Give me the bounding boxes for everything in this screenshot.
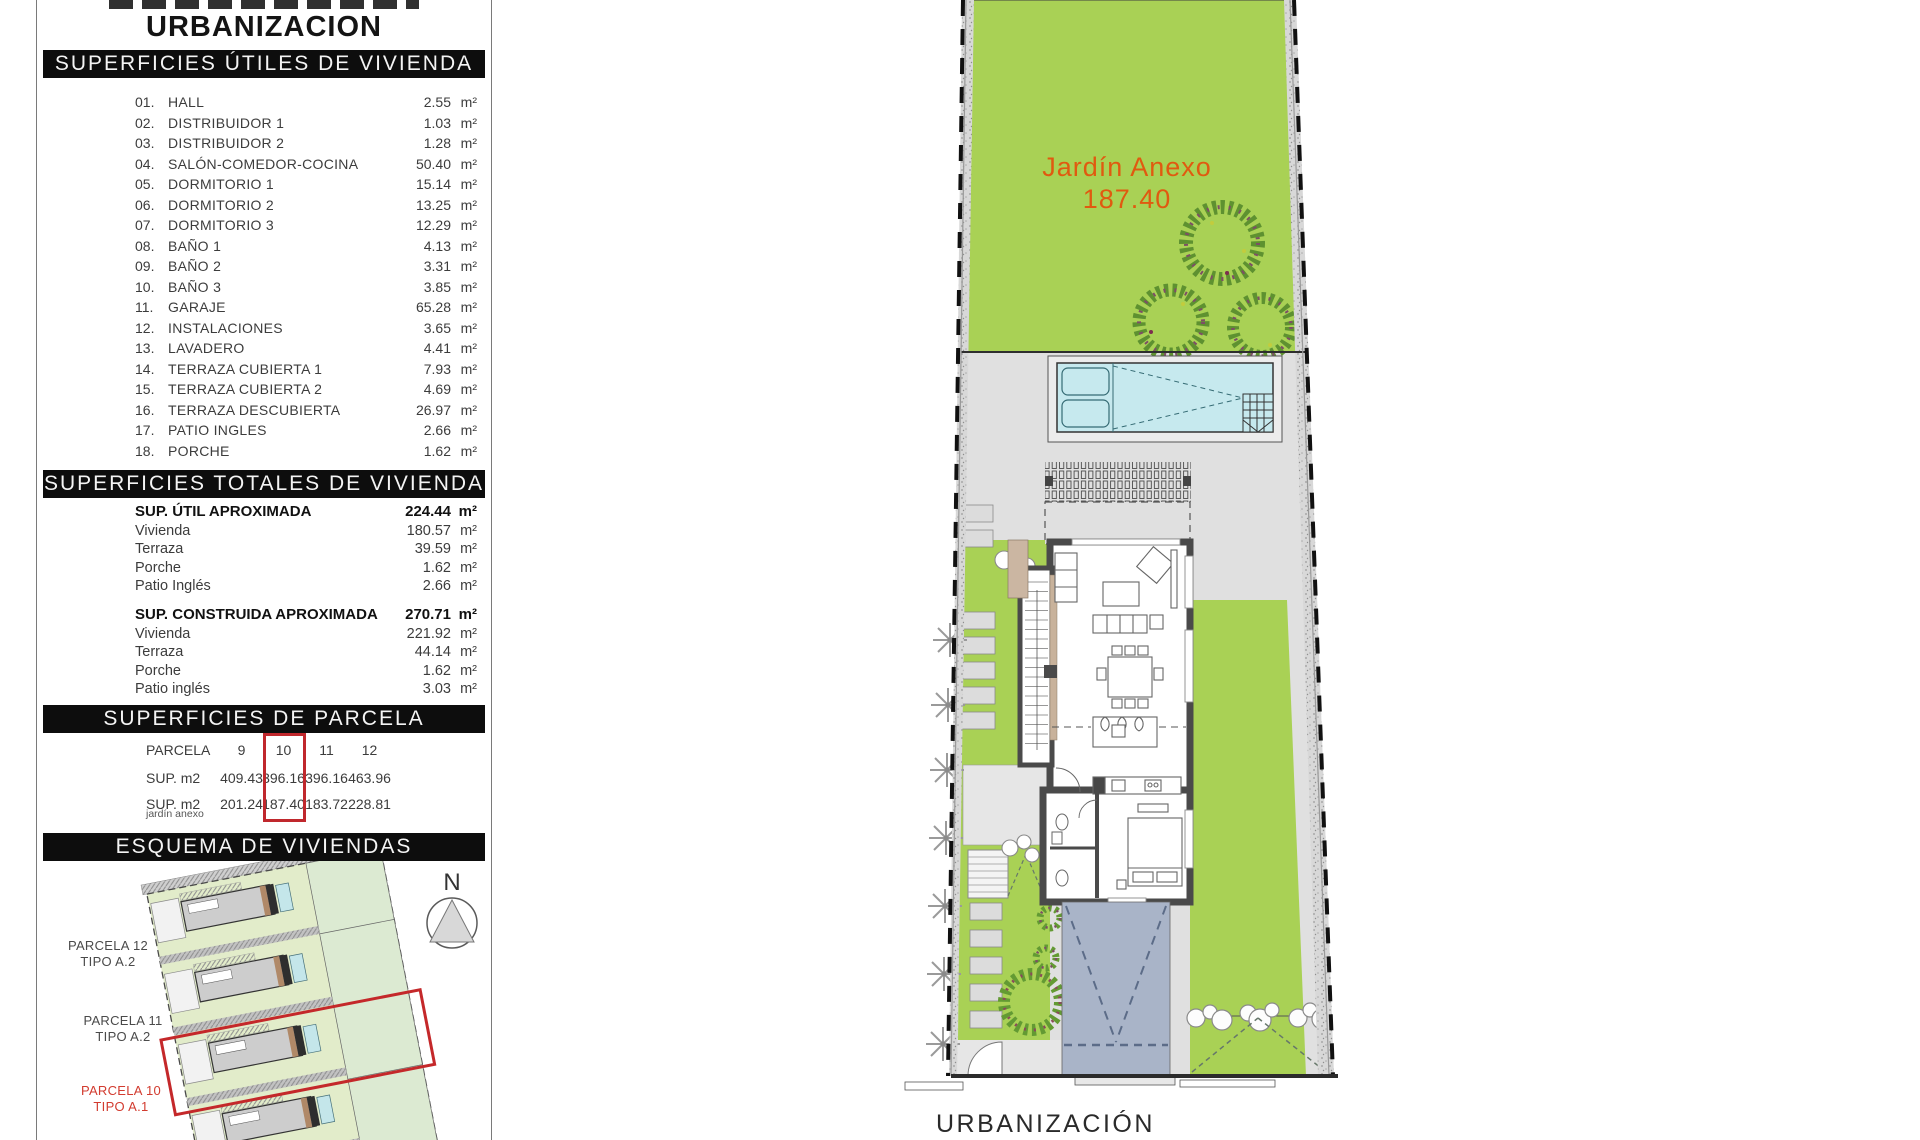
room-number: 13. [135, 338, 168, 359]
room-areas-list: 01.HALL2.55m²02.DISTRIBUIDOR 11.03m²03.D… [37, 92, 491, 461]
room-row: 07.DORMITORIO 312.29m² [37, 215, 491, 236]
totals-unit: m² [451, 662, 477, 680]
room-unit: m² [451, 338, 477, 359]
room-unit: m² [451, 154, 477, 175]
room-area: 3.31 [399, 256, 451, 277]
totals-unit: m² [451, 522, 477, 540]
room-unit: m² [451, 318, 477, 339]
room-area: 3.65 [399, 318, 451, 339]
room-unit: m² [451, 133, 477, 154]
parcela-row-label: PARCELA [146, 742, 210, 758]
room-number: 04. [135, 154, 168, 175]
room-number: 01. [135, 92, 168, 113]
section-header-esquema-viviendas: ESQUEMA DE VIVIENDAS [43, 833, 485, 861]
room-row: 16.TERRAZA DESCUBIERTA26.97m² [37, 400, 491, 421]
totals-row: Terraza39.59m² [37, 540, 491, 558]
jardin-anexo-value: 187.40 [1083, 184, 1172, 214]
room-number: 06. [135, 195, 168, 216]
room-row: 15.TERRAZA CUBIERTA 24.69m² [37, 379, 491, 400]
room-name: HALL [168, 92, 399, 113]
room-number: 16. [135, 400, 168, 421]
highlighted-parcel-box [263, 733, 306, 822]
room-row: 13.LAVADERO4.41m² [37, 338, 491, 359]
page-title: URBANIZACION [37, 11, 491, 44]
room-name: TERRAZA CUBIERTA 1 [168, 359, 399, 380]
totals-row: Porche1.62m² [37, 559, 491, 577]
parcel-sup-value: 409.43 [220, 770, 263, 786]
esquema-parcel-label: PARCELA 12TIPO A.2 [58, 938, 158, 970]
room-area: 3.85 [399, 277, 451, 298]
totals-row-value: 221.92 [391, 625, 451, 643]
room-name: LAVADERO [168, 338, 399, 359]
room-area: 15.14 [399, 174, 451, 195]
section-header-superficies-totales: SUPERFICIES TOTALES DE VIVIENDA [43, 470, 485, 498]
totals-row-label: Patio Inglés [135, 577, 391, 595]
room-number: 08. [135, 236, 168, 257]
totals-unit: m² [451, 680, 477, 698]
room-unit: m² [451, 441, 477, 462]
room-row: 05.DORMITORIO 115.14m² [37, 174, 491, 195]
parcel-label-line2: TIPO A.1 [71, 1099, 171, 1115]
parcel-sup-value: 396.16 [305, 770, 348, 786]
totals-row: Vivienda221.92m² [37, 625, 491, 643]
room-name: BAÑO 2 [168, 256, 399, 277]
room-unit: m² [451, 297, 477, 318]
parcel-id: 12 [348, 742, 391, 758]
pool [1048, 356, 1282, 442]
totals-row-label: Patio inglés [135, 680, 391, 698]
room-row: 11.GARAJE65.28m² [37, 297, 491, 318]
section-header-superficies-utiles: SUPERFICIES ÚTILES DE VIVIENDA [43, 50, 485, 78]
left-data-panel: URBANIZACION SUPERFICIES ÚTILES DE VIVIE… [36, 0, 492, 1140]
room-area: 50.40 [399, 154, 451, 175]
parcel-sup-value: 463.96 [348, 770, 391, 786]
totals-unit: m² [451, 577, 477, 595]
room-area: 1.03 [399, 113, 451, 134]
totals-value: 270.71 [391, 605, 451, 625]
room-row: 01.HALL2.55m² [37, 92, 491, 113]
totals-row-value: 39.59 [391, 540, 451, 558]
jardin-anexo-sublabel: jardín anexo [146, 808, 204, 820]
room-name: PORCHE [168, 441, 399, 462]
totals-row-value: 44.14 [391, 643, 451, 661]
room-row: 18.PORCHE1.62m² [37, 441, 491, 462]
room-row: 04.SALÓN-COMEDOR-COCINA50.40m² [37, 154, 491, 175]
room-unit: m² [451, 400, 477, 421]
totals-row-label: Terraza [135, 643, 391, 661]
room-row: 03.DISTRIBUIDOR 21.28m² [37, 133, 491, 154]
room-area: 7.93 [399, 359, 451, 380]
room-name: BAÑO 1 [168, 236, 399, 257]
room-area: 4.69 [399, 379, 451, 400]
parcel-id: 9 [220, 742, 263, 758]
room-row: 10.BAÑO 33.85m² [37, 277, 491, 298]
room-row: 14.TERRAZA CUBIERTA 17.93m² [37, 359, 491, 380]
room-name: PATIO INGLES [168, 420, 399, 441]
totals-row: Porche1.62m² [37, 662, 491, 680]
room-area: 2.55 [399, 92, 451, 113]
totals-title-row: SUP. CONSTRUIDA APROXIMADA270.71m² [37, 605, 491, 625]
totals-unit: m² [451, 502, 477, 522]
room-number: 12. [135, 318, 168, 339]
room-area: 4.41 [399, 338, 451, 359]
room-row: 12.INSTALACIONES3.65m² [37, 318, 491, 339]
pool-ladder [1243, 394, 1273, 432]
planter [1008, 540, 1028, 598]
totals-row: Terraza44.14m² [37, 643, 491, 661]
room-number: 17. [135, 420, 168, 441]
jardin-anexo-label: Jardín Anexo [1042, 152, 1212, 182]
totals-row-value: 180.57 [391, 522, 451, 540]
totals-value: 224.44 [391, 502, 451, 522]
totals-row-value: 3.03 [391, 680, 451, 698]
room-row: 06.DORMITORIO 213.25m² [37, 195, 491, 216]
room-unit: m² [451, 256, 477, 277]
room-name: GARAJE [168, 297, 399, 318]
room-area: 13.25 [399, 195, 451, 216]
room-number: 02. [135, 113, 168, 134]
room-row: 09.BAÑO 23.31m² [37, 256, 491, 277]
room-unit: m² [451, 215, 477, 236]
totals-group: SUP. CONSTRUIDA APROXIMADA270.71m²Vivien… [37, 605, 491, 698]
room-area: 65.28 [399, 297, 451, 318]
parcel-label-line2: TIPO A.2 [73, 1029, 173, 1045]
totals-list: SUP. ÚTIL APROXIMADA224.44m²Vivienda180.… [37, 502, 491, 708]
room-number: 14. [135, 359, 168, 380]
parcel-label-line2: TIPO A.2 [58, 954, 158, 970]
urbanizacion-street-label: URBANIZACIÓN [936, 1109, 1155, 1138]
room-unit: m² [451, 236, 477, 257]
parcel-jardin-value: 228.81 [348, 796, 391, 812]
room-area: 1.62 [399, 441, 451, 462]
room-name: SALÓN-COMEDOR-COCINA [168, 154, 399, 175]
totals-row-label: Porche [135, 662, 391, 680]
parcel-jardin-value: 201.24 [220, 796, 263, 812]
totals-row: Patio Inglés2.66m² [37, 577, 491, 595]
room-name: DORMITORIO 2 [168, 195, 399, 216]
driveway [1062, 902, 1175, 1085]
room-number: 18. [135, 441, 168, 462]
sup-m2-label: SUP. m2 [146, 770, 200, 786]
room-number: 10. [135, 277, 168, 298]
room-unit: m² [451, 359, 477, 380]
room-unit: m² [451, 92, 477, 113]
clipped-title-fragment [109, 0, 419, 9]
totals-unit: m² [451, 540, 477, 558]
totals-title-row: SUP. ÚTIL APROXIMADA224.44m² [37, 502, 491, 522]
parcel-id: 11 [305, 742, 348, 758]
esquema-parcel-label: PARCELA 10TIPO A.1 [71, 1083, 171, 1115]
totals-group: SUP. ÚTIL APROXIMADA224.44m²Vivienda180.… [37, 502, 491, 595]
section-header-superficies-parcela: SUPERFICIES DE PARCELA [43, 705, 485, 733]
room-row: 08.BAÑO 14.13m² [37, 236, 491, 257]
room-area: 4.13 [399, 236, 451, 257]
room-unit: m² [451, 113, 477, 134]
totals-row: Patio inglés3.03m² [37, 680, 491, 698]
room-name: BAÑO 3 [168, 277, 399, 298]
totals-row-value: 1.62 [391, 662, 451, 680]
pool-lounger [1062, 400, 1109, 427]
room-area: 12.29 [399, 215, 451, 236]
room-name: DISTRIBUIDOR 1 [168, 113, 399, 134]
room-area: 2.66 [399, 420, 451, 441]
room-name: TERRAZA CUBIERTA 2 [168, 379, 399, 400]
totals-row-label: Vivienda [135, 522, 391, 540]
totals-unit: m² [451, 643, 477, 661]
room-name: DORMITORIO 3 [168, 215, 399, 236]
room-unit: m² [451, 420, 477, 441]
room-number: 11. [135, 297, 168, 318]
esquema-parcel-label: PARCELA 11TIPO A.2 [73, 1013, 173, 1045]
room-name: TERRAZA DESCUBIERTA [168, 400, 399, 421]
totals-unit: m² [451, 605, 477, 625]
totals-row: Vivienda180.57m² [37, 522, 491, 540]
covered-terrace-outline [1045, 502, 1190, 544]
room-area: 26.97 [399, 400, 451, 421]
totals-title: SUP. ÚTIL APROXIMADA [135, 502, 391, 522]
room-name: DISTRIBUIDOR 2 [168, 133, 399, 154]
room-name: DORMITORIO 1 [168, 174, 399, 195]
room-number: 03. [135, 133, 168, 154]
room-unit: m² [451, 195, 477, 216]
totals-row-value: 1.62 [391, 559, 451, 577]
room-unit: m² [451, 174, 477, 195]
parcel-label-line1: PARCELA 12 [58, 938, 158, 954]
parcel-jardin-value: 183.72 [305, 796, 348, 812]
room-area: 1.28 [399, 133, 451, 154]
room-number: 09. [135, 256, 168, 277]
totals-row-value: 2.66 [391, 577, 451, 595]
parcel-label-line1: PARCELA 11 [73, 1013, 173, 1029]
parcel-label-line1: PARCELA 10 [71, 1083, 171, 1099]
pergola [1045, 462, 1191, 544]
room-unit: m² [451, 379, 477, 400]
totals-row-label: Terraza [135, 540, 391, 558]
room-name: INSTALACIONES [168, 318, 399, 339]
pool-lounger [1062, 368, 1109, 395]
totals-unit: m² [451, 625, 477, 643]
totals-row-label: Porche [135, 559, 391, 577]
room-row: 17.PATIO INGLES2.66m² [37, 420, 491, 441]
totals-title: SUP. CONSTRUIDA APROXIMADA [135, 605, 391, 625]
room-number: 15. [135, 379, 168, 400]
totals-row-label: Vivienda [135, 625, 391, 643]
totals-unit: m² [451, 559, 477, 577]
room-unit: m² [451, 277, 477, 298]
room-number: 05. [135, 174, 168, 195]
room-row: 02.DISTRIBUIDOR 11.03m² [37, 113, 491, 134]
room-number: 07. [135, 215, 168, 236]
